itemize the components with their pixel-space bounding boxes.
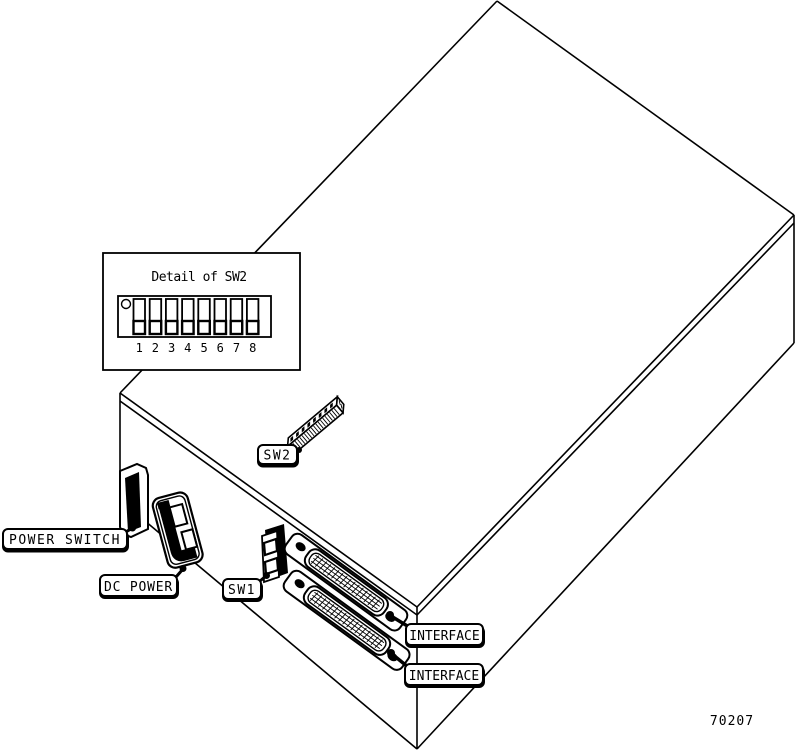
dip-number: 1 — [136, 341, 143, 355]
right-bottom-edge — [417, 343, 794, 749]
dip-number: 2 — [152, 341, 159, 355]
leader-dot — [180, 565, 187, 572]
leader-dot — [129, 525, 136, 532]
label-text: SW2 — [264, 449, 292, 464]
sw1-button-lower — [265, 558, 278, 574]
dip-orientation-mark — [122, 300, 131, 309]
label-interface-bottom: INTERFACE — [404, 664, 485, 688]
rear-panel-line-drawing: Detail of SW2 1 2 3 4 5 — [0, 0, 796, 750]
dip-number: 4 — [184, 341, 191, 355]
leader-dot — [386, 611, 394, 619]
label-text: SW1 — [228, 583, 256, 598]
label-dc-power: DC POWER — [99, 575, 179, 599]
dip-number: 3 — [168, 341, 175, 355]
label-text: INTERFACE — [409, 669, 479, 684]
detail-panel-title: Detail of SW2 — [151, 270, 246, 285]
dip-number: 8 — [249, 341, 256, 355]
dip-number: 5 — [200, 341, 207, 355]
label-sw1: SW1 — [222, 579, 263, 602]
label-text: POWER SWITCH — [9, 533, 121, 548]
label-text: INTERFACE — [409, 629, 479, 644]
leader-dot — [263, 572, 270, 579]
diagram-canvas: Detail of SW2 1 2 3 4 5 — [0, 0, 796, 750]
top-face-right-edge — [497, 1, 794, 215]
leader-dot — [387, 649, 395, 657]
label-sw2: SW2 — [257, 445, 299, 468]
dc-power-connector — [151, 491, 204, 570]
label-interface-top: INTERFACE — [405, 624, 485, 648]
label-text: DC POWER — [104, 580, 173, 595]
figure-number: 70207 — [710, 714, 754, 729]
sw2-detail-panel: Detail of SW2 1 2 3 4 5 — [103, 253, 300, 370]
dip-number: 7 — [233, 341, 240, 355]
label-power-switch: POWER SWITCH — [2, 529, 129, 553]
dip-number: 6 — [217, 341, 224, 355]
sw1-button-upper — [264, 539, 277, 555]
